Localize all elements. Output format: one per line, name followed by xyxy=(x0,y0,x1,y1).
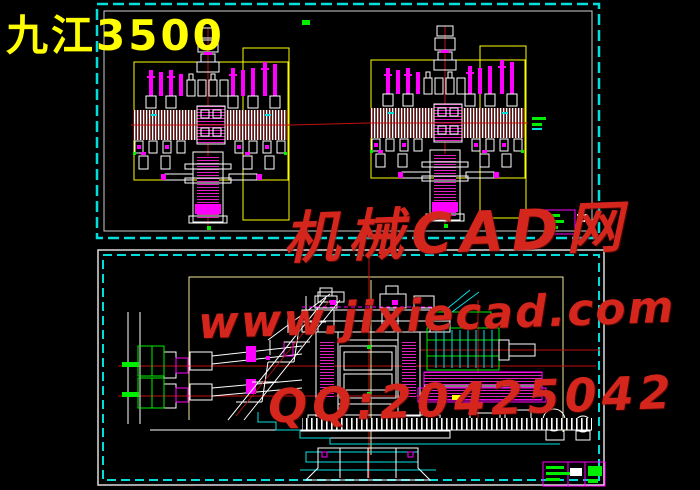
gearbox xyxy=(418,372,546,402)
sheet1-title-block xyxy=(545,210,587,234)
sheet2-border xyxy=(98,250,604,485)
cad-drawing-svg xyxy=(0,0,700,490)
drive-spindles xyxy=(212,342,302,396)
sheet2-title-block xyxy=(543,462,605,486)
base-pedestal xyxy=(306,448,430,480)
stand-front-view-left xyxy=(131,28,291,230)
drive-motor xyxy=(427,290,591,440)
mill-side-elevation xyxy=(118,252,600,480)
connecting-centerline xyxy=(291,123,368,125)
sheet2-yellow-frame xyxy=(189,277,563,432)
cad-plot-canvas: 九江3500 机械CAD网 www.jixiecad.com QQ:204250… xyxy=(0,0,700,490)
left-roller-assembly xyxy=(122,312,212,424)
stand-front-view-right xyxy=(368,26,528,228)
